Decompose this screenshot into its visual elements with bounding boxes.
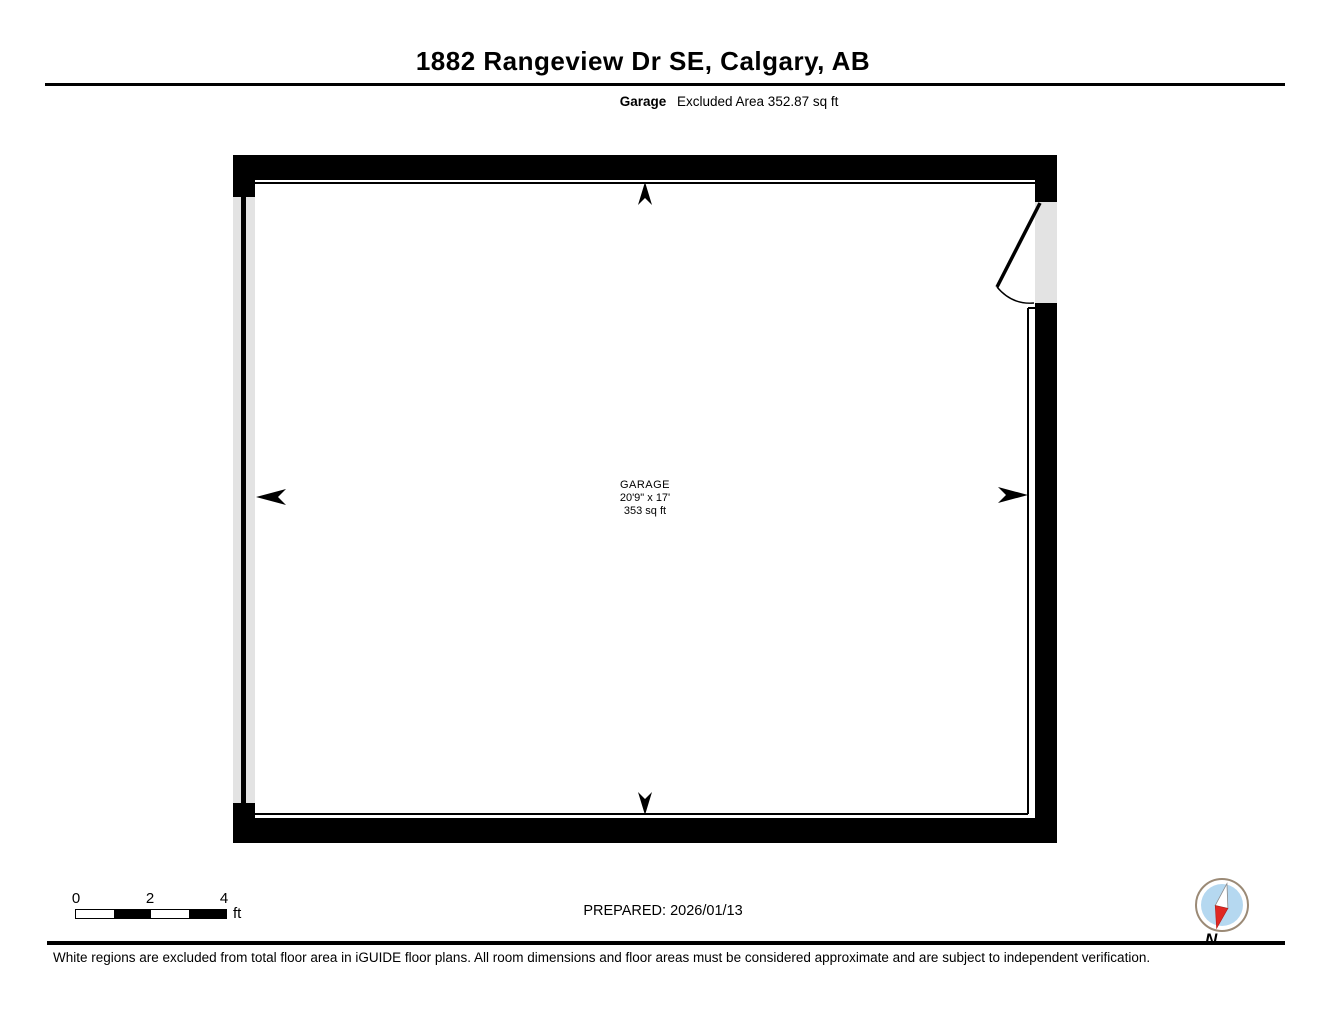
floor-label: Garage bbox=[620, 94, 667, 109]
disclaimer-text: White regions are excluded from total fl… bbox=[53, 950, 1150, 965]
door-swing-icon bbox=[997, 203, 1040, 303]
page-title: 1882 Rangeview Dr SE, Calgary, AB bbox=[416, 46, 870, 77]
scale-segment bbox=[151, 910, 189, 918]
scale-tick-2: 2 bbox=[146, 890, 154, 907]
scale-tick-0: 0 bbox=[72, 890, 80, 907]
title-divider bbox=[45, 83, 1285, 86]
compass-icon: N bbox=[1195, 878, 1251, 950]
room-label: GARAGE 20'9" x 17' 353 sq ft bbox=[620, 479, 670, 518]
dimension-arrow-up-icon bbox=[638, 182, 652, 205]
room-name: GARAGE bbox=[620, 479, 670, 492]
footer-divider bbox=[47, 941, 1285, 945]
floorplan-page: 1882 Rangeview Dr SE, Calgary, AB Garage… bbox=[0, 0, 1325, 1024]
compass-north-label: N bbox=[1205, 930, 1217, 950]
prepared-date: PREPARED: 2026/01/13 bbox=[583, 903, 742, 919]
room-area: 353 sq ft bbox=[620, 505, 670, 518]
dimension-arrow-left-icon bbox=[256, 489, 286, 505]
room-dimensions: 20'9" x 17' bbox=[620, 492, 670, 505]
scale-unit-label: ft bbox=[233, 905, 241, 922]
scale-bar bbox=[75, 909, 227, 919]
scale-segment bbox=[76, 910, 114, 918]
compass-needle-icon bbox=[1195, 878, 1249, 932]
scale-segment bbox=[189, 910, 227, 918]
dimension-arrow-right-icon bbox=[998, 487, 1028, 503]
floorplan-diagram: GARAGE 20'9" x 17' 353 sq ft bbox=[233, 155, 1057, 843]
dimension-arrow-down-icon bbox=[638, 792, 652, 815]
excluded-area-text: Excluded Area 352.87 sq ft bbox=[677, 94, 838, 109]
scale-tick-4: 4 bbox=[220, 890, 228, 907]
scale-segment bbox=[114, 910, 152, 918]
